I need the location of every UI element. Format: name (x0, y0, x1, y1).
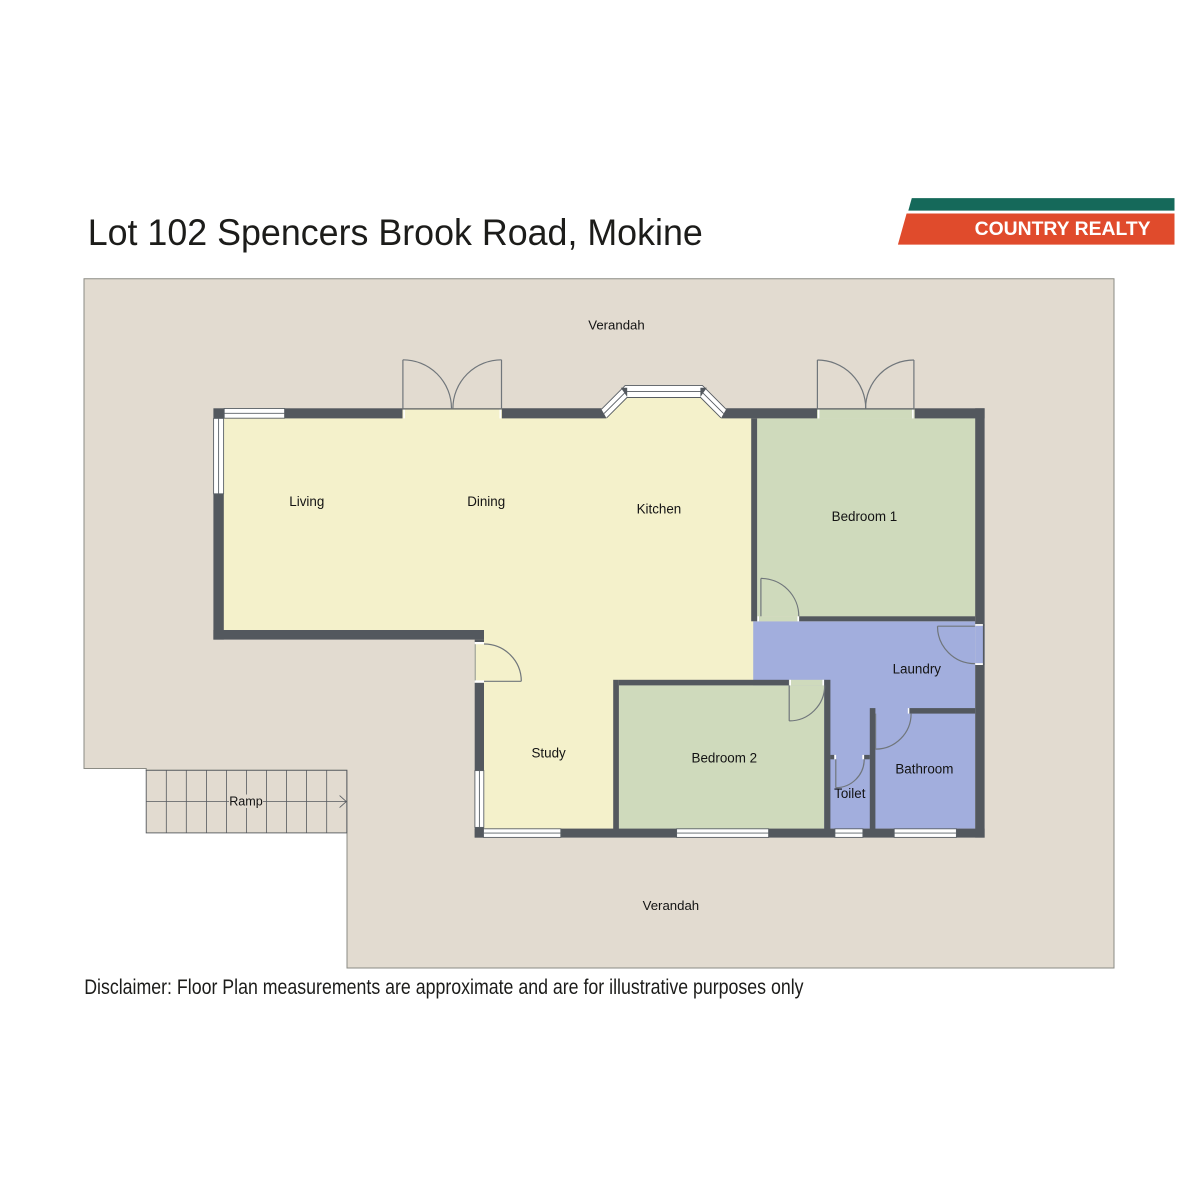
svg-text:Ramp: Ramp (229, 795, 263, 809)
svg-text:Living: Living (289, 494, 324, 509)
svg-text:Verandah: Verandah (643, 898, 699, 913)
svg-text:Kitchen: Kitchen (637, 501, 682, 516)
svg-text:Disclaimer: Floor Plan measure: Disclaimer: Floor Plan measurements are … (84, 976, 803, 1000)
svg-text:Bedroom 1: Bedroom 1 (832, 509, 898, 524)
svg-text:Lot 102 Spencers Brook Road, M: Lot 102 Spencers Brook Road, Mokine (88, 211, 703, 253)
svg-text:Study: Study (531, 745, 566, 760)
svg-text:Toilet: Toilet (834, 786, 866, 801)
svg-text:Bedroom 2: Bedroom 2 (692, 751, 758, 766)
svg-text:Dining: Dining (467, 494, 505, 509)
svg-text:Verandah: Verandah (588, 317, 644, 332)
svg-text:Bathroom: Bathroom (895, 761, 953, 776)
svg-text:Laundry: Laundry (893, 662, 942, 677)
svg-text:COUNTRY REALTY: COUNTRY REALTY (975, 218, 1151, 240)
